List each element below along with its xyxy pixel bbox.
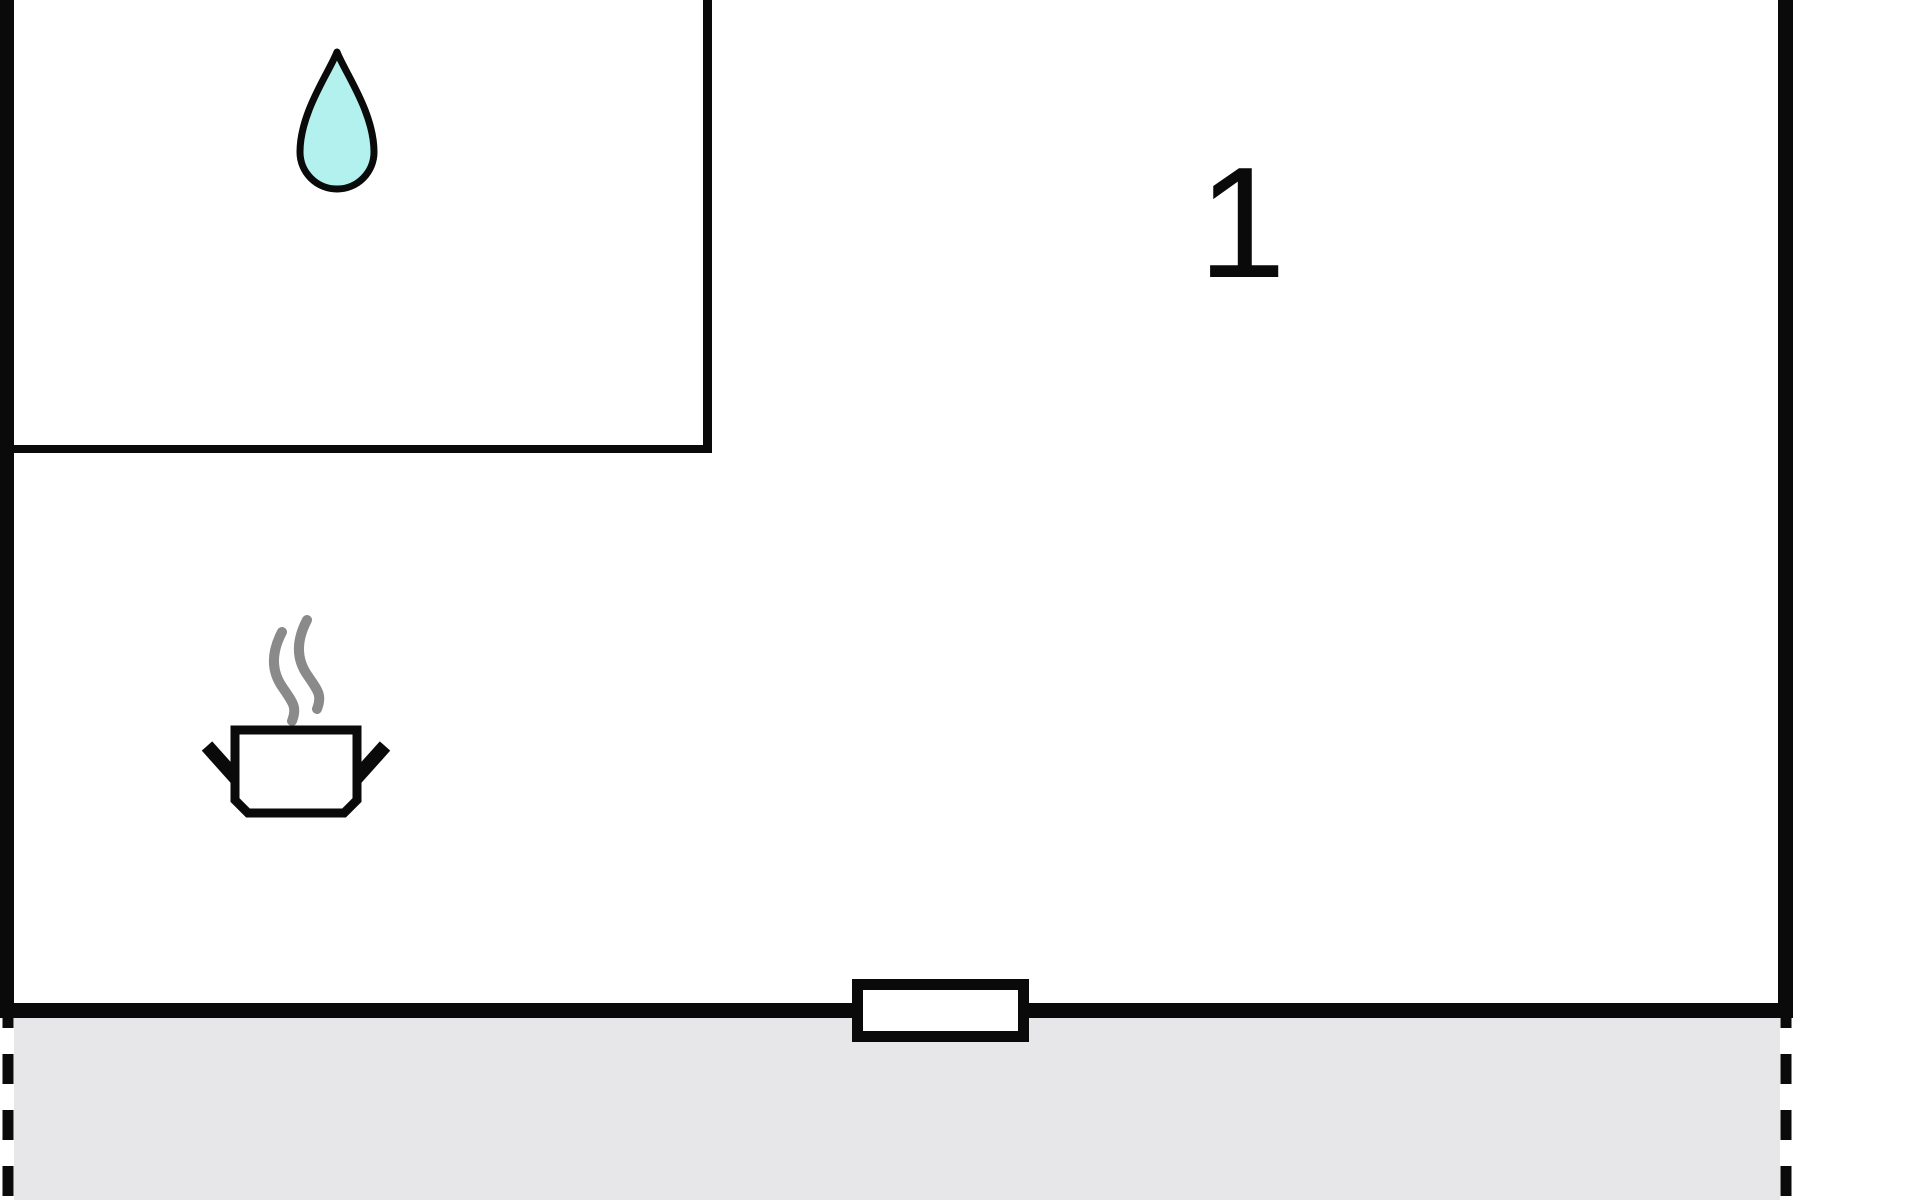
wall-right (1778, 0, 1793, 1018)
terrace-boundary-dashed-right (1780, 1018, 1792, 1200)
floorplan: 1 (0, 0, 1920, 1200)
water-drop-shape (300, 52, 374, 189)
terrace-boundary-dashed-left (2, 1018, 14, 1200)
steam-pot-icon (195, 608, 395, 823)
pot-body (235, 730, 357, 813)
water-drop-icon (291, 46, 383, 206)
steam-line-left (274, 632, 294, 721)
wall-left (0, 0, 14, 1018)
wall-subroom-bottom (0, 445, 712, 453)
window-marker (852, 979, 1029, 1042)
wall-subroom-right (703, 0, 712, 453)
steam-line-right (299, 620, 319, 709)
room-label: 1 (1142, 123, 1342, 323)
terrace-area (14, 1018, 1780, 1200)
